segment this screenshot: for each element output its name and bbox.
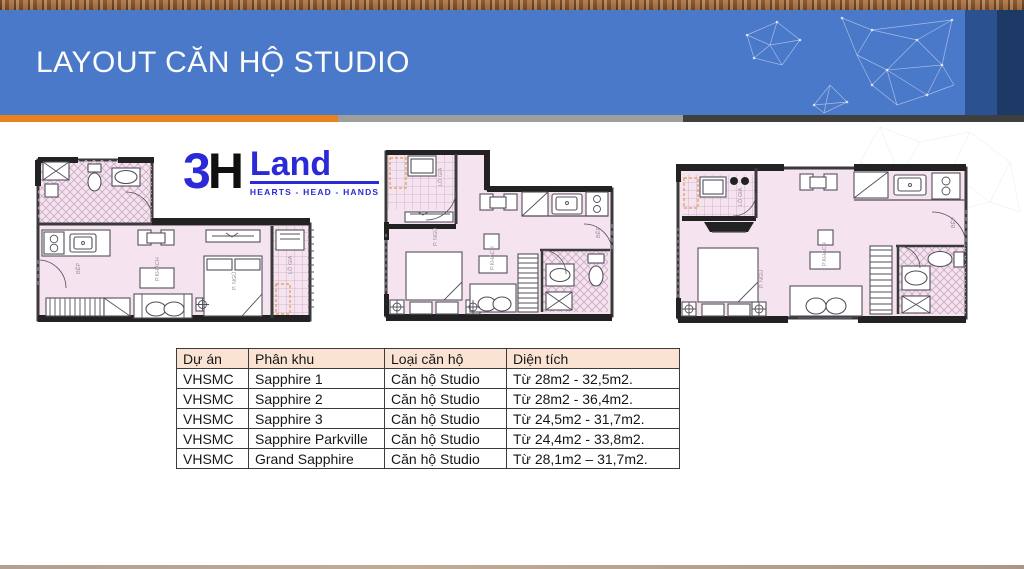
col-header-project: Dự án — [177, 349, 249, 369]
studio-info-table: Dự án Phân khu Loại căn hộ Diện tích VHS… — [176, 348, 680, 469]
title-bar-navy-band — [965, 10, 997, 115]
cell-subdivision: Sapphire Parkville — [249, 429, 385, 449]
cell-project: VHSMC — [177, 409, 249, 429]
svg-text:LÔ GIA: LÔ GIA — [737, 187, 744, 206]
cell-project: VHSMC — [177, 429, 249, 449]
cell-unit-type: Căn hộ Studio — [385, 449, 507, 469]
cell-subdivision: Sapphire 3 — [249, 409, 385, 429]
floor-plan-1: LÔ GIA BẾP P.KHÁCH P. NGỦ — [30, 152, 315, 330]
title-bar: LAYOUT CĂN HỘ STUDIO — [0, 10, 1024, 115]
table-row: VHSMC Grand Sapphire Căn hộ Studio Từ 28… — [177, 449, 680, 469]
polygon-mesh-decoration — [706, 10, 966, 115]
svg-text:LÔ GIA: LÔ GIA — [437, 167, 444, 186]
table-header-row: Dự án Phân khu Loại căn hộ Diện tích — [177, 349, 680, 369]
cell-project: VHSMC — [177, 369, 249, 389]
svg-text:P. NGỦ: P. NGỦ — [432, 228, 439, 246]
col-header-subdivision: Phân khu — [249, 349, 385, 369]
svg-text:P.KHÁCH: P.KHÁCH — [154, 257, 161, 281]
cell-subdivision: Sapphire 1 — [249, 369, 385, 389]
accent-strip-orange — [0, 115, 338, 122]
cell-project: VHSMC — [177, 389, 249, 409]
cell-unit-type: Căn hộ Studio — [385, 429, 507, 449]
svg-text:BẾP: BẾP — [950, 217, 957, 228]
cell-area: Từ 24,5m2 - 31,7m2. — [507, 409, 680, 429]
cell-subdivision: Grand Sapphire — [249, 449, 385, 469]
col-header-unit-type: Loại căn hộ — [385, 349, 507, 369]
svg-text:P.KHÁCH: P.KHÁCH — [489, 246, 496, 270]
cell-area: Từ 28,1m2 – 31,7m2. — [507, 449, 680, 469]
col-header-area: Diện tích — [507, 349, 680, 369]
svg-text:LÔ GIA: LÔ GIA — [287, 255, 294, 274]
svg-text:P. NGỦ: P. NGỦ — [758, 270, 765, 288]
floor-plan-3: LÔ GIA P.KHÁCH P. NGỦ BẾP — [672, 158, 972, 328]
title-bar-dark-navy-band — [997, 10, 1024, 115]
cell-unit-type: Căn hộ Studio — [385, 389, 507, 409]
cell-area: Từ 28m2 - 32,5m2. — [507, 369, 680, 389]
cell-subdivision: Sapphire 2 — [249, 389, 385, 409]
table-row: VHSMC Sapphire 3 Căn hộ Studio Từ 24,5m2… — [177, 409, 680, 429]
accent-strip-dark — [683, 115, 1024, 122]
cell-unit-type: Căn hộ Studio — [385, 409, 507, 429]
table-row: VHSMC Sapphire 2 Căn hộ Studio Từ 28m2 -… — [177, 389, 680, 409]
bottom-edge-strip — [0, 565, 1024, 569]
floor-plan-2: LÔ GIA P.KHÁCH P. NGỦ BẾP — [380, 146, 614, 326]
copper-texture-strip — [0, 0, 1024, 10]
svg-text:P. NGỦ: P. NGỦ — [231, 272, 238, 290]
cell-area: Từ 24,4m2 - 33,8m2. — [507, 429, 680, 449]
table-row: VHSMC Sapphire Parkville Căn hộ Studio T… — [177, 429, 680, 449]
table-row: VHSMC Sapphire 1 Căn hộ Studio Từ 28m2 -… — [177, 369, 680, 389]
svg-text:P.KHÁCH: P.KHÁCH — [821, 242, 828, 266]
cell-project: VHSMC — [177, 449, 249, 469]
svg-text:BẾP: BẾP — [595, 227, 602, 238]
cell-unit-type: Căn hộ Studio — [385, 369, 507, 389]
page-title: LAYOUT CĂN HỘ STUDIO — [36, 10, 410, 115]
accent-strip-gray — [338, 115, 683, 122]
slide: { "slide": { "title": "LAYOUT CĂN HỘ STU… — [0, 0, 1024, 569]
cell-area: Từ 28m2 - 36,4m2. — [507, 389, 680, 409]
svg-text:BẾP: BẾP — [75, 263, 82, 274]
